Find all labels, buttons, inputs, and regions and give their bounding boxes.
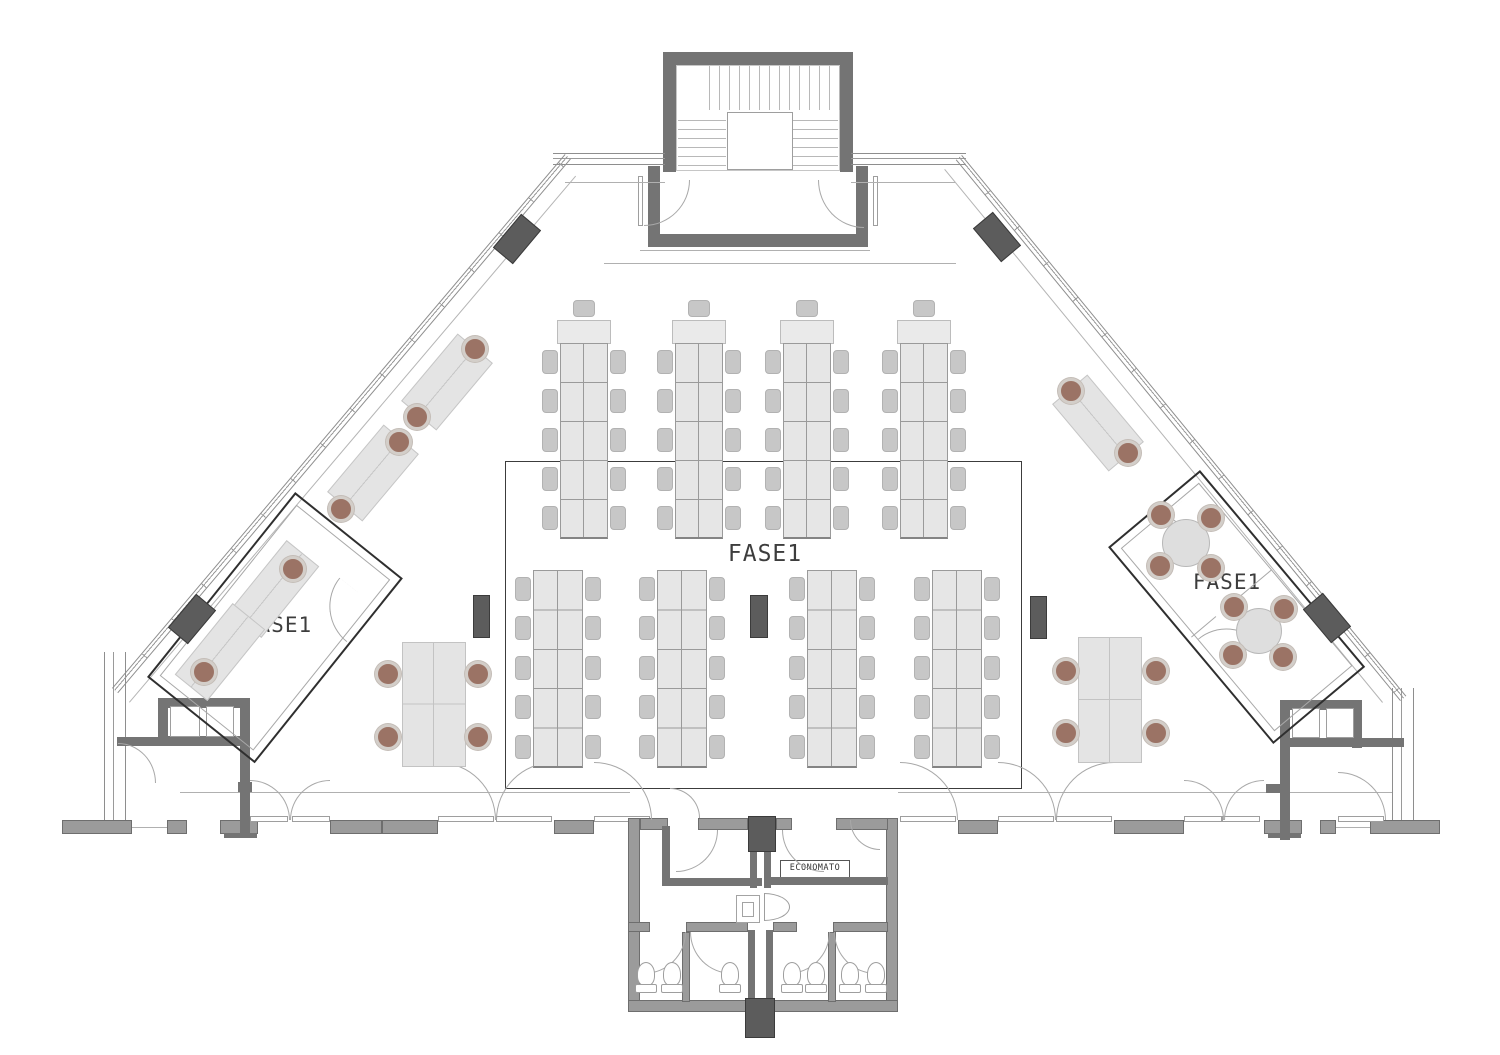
vestibule-room-wall [662, 826, 670, 882]
chair-brown [1271, 596, 1297, 622]
chair [950, 389, 966, 413]
chair [984, 695, 1000, 719]
bottom-wall [167, 820, 187, 834]
chair [882, 428, 898, 452]
chair [765, 389, 781, 413]
desk-cabinet [897, 320, 951, 344]
door-leaf [873, 176, 878, 226]
column [1030, 596, 1047, 639]
door-arc [1338, 772, 1386, 820]
chair [542, 428, 558, 452]
head-chair [913, 300, 935, 317]
chair [765, 350, 781, 374]
desk-bank [533, 570, 583, 768]
stair-flight-up [700, 66, 840, 110]
chair-brown [375, 724, 401, 750]
chair [515, 616, 531, 640]
chair [950, 467, 966, 491]
chair [914, 735, 930, 759]
chair [725, 350, 741, 374]
chair [542, 506, 558, 530]
head-chair [573, 300, 595, 317]
chair [725, 389, 741, 413]
bottom-wall [1370, 820, 1440, 834]
desk-bank [932, 570, 982, 768]
chair-brown [404, 404, 430, 430]
toilet [783, 962, 801, 986]
chair [542, 467, 558, 491]
desk-cabinet [780, 320, 834, 344]
chair-brown [1058, 378, 1084, 404]
toilet [721, 962, 739, 986]
chair [639, 656, 655, 680]
chair [725, 467, 741, 491]
service-wall [776, 818, 792, 830]
chair [709, 735, 725, 759]
chair [859, 616, 875, 640]
chair [765, 467, 781, 491]
column [748, 816, 776, 852]
head-chair [796, 300, 818, 317]
chair [789, 577, 805, 601]
chair [585, 656, 601, 680]
door-arc [1056, 762, 1114, 820]
chair [585, 577, 601, 601]
chair [639, 577, 655, 601]
bottom-wall [382, 820, 438, 834]
head-chair [688, 300, 710, 317]
sill-line [851, 182, 955, 183]
chair [515, 735, 531, 759]
chair [709, 695, 725, 719]
chair-brown [465, 661, 491, 687]
stair-flight-left [678, 112, 726, 172]
chair [859, 735, 875, 759]
chair [657, 389, 673, 413]
chair-brown [280, 556, 306, 582]
desk-cabinet [557, 320, 611, 344]
chair-brown [1147, 553, 1173, 579]
chair-brown [465, 724, 491, 750]
toilet [867, 962, 885, 986]
chair [657, 350, 673, 374]
wc-wall [833, 922, 888, 932]
stair-wall [663, 52, 853, 65]
chair [882, 467, 898, 491]
chair [914, 616, 930, 640]
chair [725, 506, 741, 530]
wall-stub [1266, 784, 1282, 793]
vestibule-room-wall [662, 878, 762, 886]
chair [833, 467, 849, 491]
chair-brown [1220, 642, 1246, 668]
chair [585, 616, 601, 640]
bottom-wall [1320, 820, 1336, 834]
desk-cabinet [672, 320, 726, 344]
chair [914, 577, 930, 601]
chair-brown [1148, 502, 1174, 528]
chair [709, 616, 725, 640]
wc-fixture-inner [742, 902, 754, 917]
chair [833, 389, 849, 413]
bottom-wall [62, 820, 132, 834]
bottom-wall [220, 820, 258, 834]
desk-bank [675, 343, 723, 539]
economato-wall [768, 877, 888, 885]
chair-brown [1270, 644, 1296, 670]
chair-brown [1143, 658, 1169, 684]
duct-wall [748, 930, 755, 1002]
door-arc [1184, 780, 1224, 820]
chair [833, 350, 849, 374]
desk-bank [900, 343, 948, 539]
stair-flight-right [790, 112, 838, 172]
step-line [640, 250, 870, 251]
door-arc [644, 180, 690, 226]
door-arc [250, 780, 290, 820]
chair [657, 428, 673, 452]
corridor-line [898, 792, 1392, 793]
door-arc [676, 830, 718, 872]
chair-brown [1115, 440, 1141, 466]
chair [882, 389, 898, 413]
chair [610, 467, 626, 491]
chair [882, 506, 898, 530]
chair [657, 506, 673, 530]
chair [610, 428, 626, 452]
chair [765, 428, 781, 452]
door-arc [438, 762, 496, 820]
vestibule-wall [648, 234, 868, 247]
door-arc [818, 180, 864, 228]
desk-bank [560, 343, 608, 539]
chair [950, 350, 966, 374]
wc-wall [686, 922, 748, 932]
bottom-wall [958, 820, 998, 834]
chair-brown [191, 659, 217, 685]
desk-bank [807, 570, 857, 768]
meeting-table [1078, 637, 1142, 763]
shaft-cell [1326, 708, 1354, 738]
chair [765, 506, 781, 530]
door-arc [670, 788, 700, 818]
chair [984, 735, 1000, 759]
stair-landing [727, 112, 793, 170]
chair [657, 467, 673, 491]
toilet [807, 962, 825, 986]
chair [639, 735, 655, 759]
chair [515, 577, 531, 601]
chair [950, 506, 966, 530]
door-leaf [638, 176, 643, 226]
door-arc [1224, 780, 1264, 820]
wc-sink [764, 893, 790, 921]
service-wall [698, 818, 748, 830]
column [745, 998, 775, 1038]
floor-plan: FASE1 FASE1 FASE1 ECONOMATO [0, 0, 1500, 1055]
door-arc [998, 762, 1056, 820]
chair [585, 735, 601, 759]
column [493, 214, 541, 264]
chair [515, 656, 531, 680]
wc-wall [628, 922, 650, 932]
desk-bank [657, 570, 707, 768]
chair-brown [386, 429, 412, 455]
chair [833, 506, 849, 530]
chair [610, 389, 626, 413]
chair-brown [328, 496, 354, 522]
chair [882, 350, 898, 374]
chair [984, 616, 1000, 640]
service-wall [886, 818, 898, 1012]
chair-brown [1198, 555, 1224, 581]
chair-brown [462, 336, 488, 362]
shaft-wall [1280, 738, 1404, 747]
top-window-wall [851, 153, 966, 165]
chair-brown [1053, 658, 1079, 684]
door-arc [290, 780, 330, 820]
chair-brown [1143, 720, 1169, 746]
bottom-wall [1114, 820, 1184, 834]
chair [833, 428, 849, 452]
chair [709, 577, 725, 601]
threshold [132, 827, 168, 828]
duct-wall [750, 852, 757, 888]
chair-brown [1053, 720, 1079, 746]
door-arc [118, 743, 156, 783]
column [750, 595, 768, 638]
door-arc [850, 820, 880, 850]
chair [610, 350, 626, 374]
bottom-wall [330, 820, 382, 834]
column [473, 595, 490, 638]
chair-brown [1221, 594, 1247, 620]
chair [585, 695, 601, 719]
toilet [637, 962, 655, 986]
desk-bank [783, 343, 831, 539]
duct-wall [766, 930, 773, 1002]
chair [914, 695, 930, 719]
chair [984, 656, 1000, 680]
chair [789, 695, 805, 719]
wc-wall [773, 922, 797, 932]
chair [515, 695, 531, 719]
chair [789, 616, 805, 640]
chair [542, 389, 558, 413]
chair [984, 577, 1000, 601]
threshold [1336, 827, 1370, 828]
chair [725, 428, 741, 452]
bottom-wall [554, 820, 594, 834]
toilet [841, 962, 859, 986]
toilet [663, 962, 681, 986]
chair [859, 577, 875, 601]
step-line [604, 263, 956, 264]
chair [950, 428, 966, 452]
chair [639, 695, 655, 719]
meeting-table [402, 642, 466, 767]
chair [639, 616, 655, 640]
chair [914, 656, 930, 680]
chair-brown [1198, 505, 1224, 531]
chair [610, 506, 626, 530]
chair [542, 350, 558, 374]
chair [859, 695, 875, 719]
chair [859, 656, 875, 680]
chair [709, 656, 725, 680]
chair [789, 656, 805, 680]
chair-brown [375, 661, 401, 687]
right-wall-lower [1392, 688, 1414, 822]
chair [789, 735, 805, 759]
